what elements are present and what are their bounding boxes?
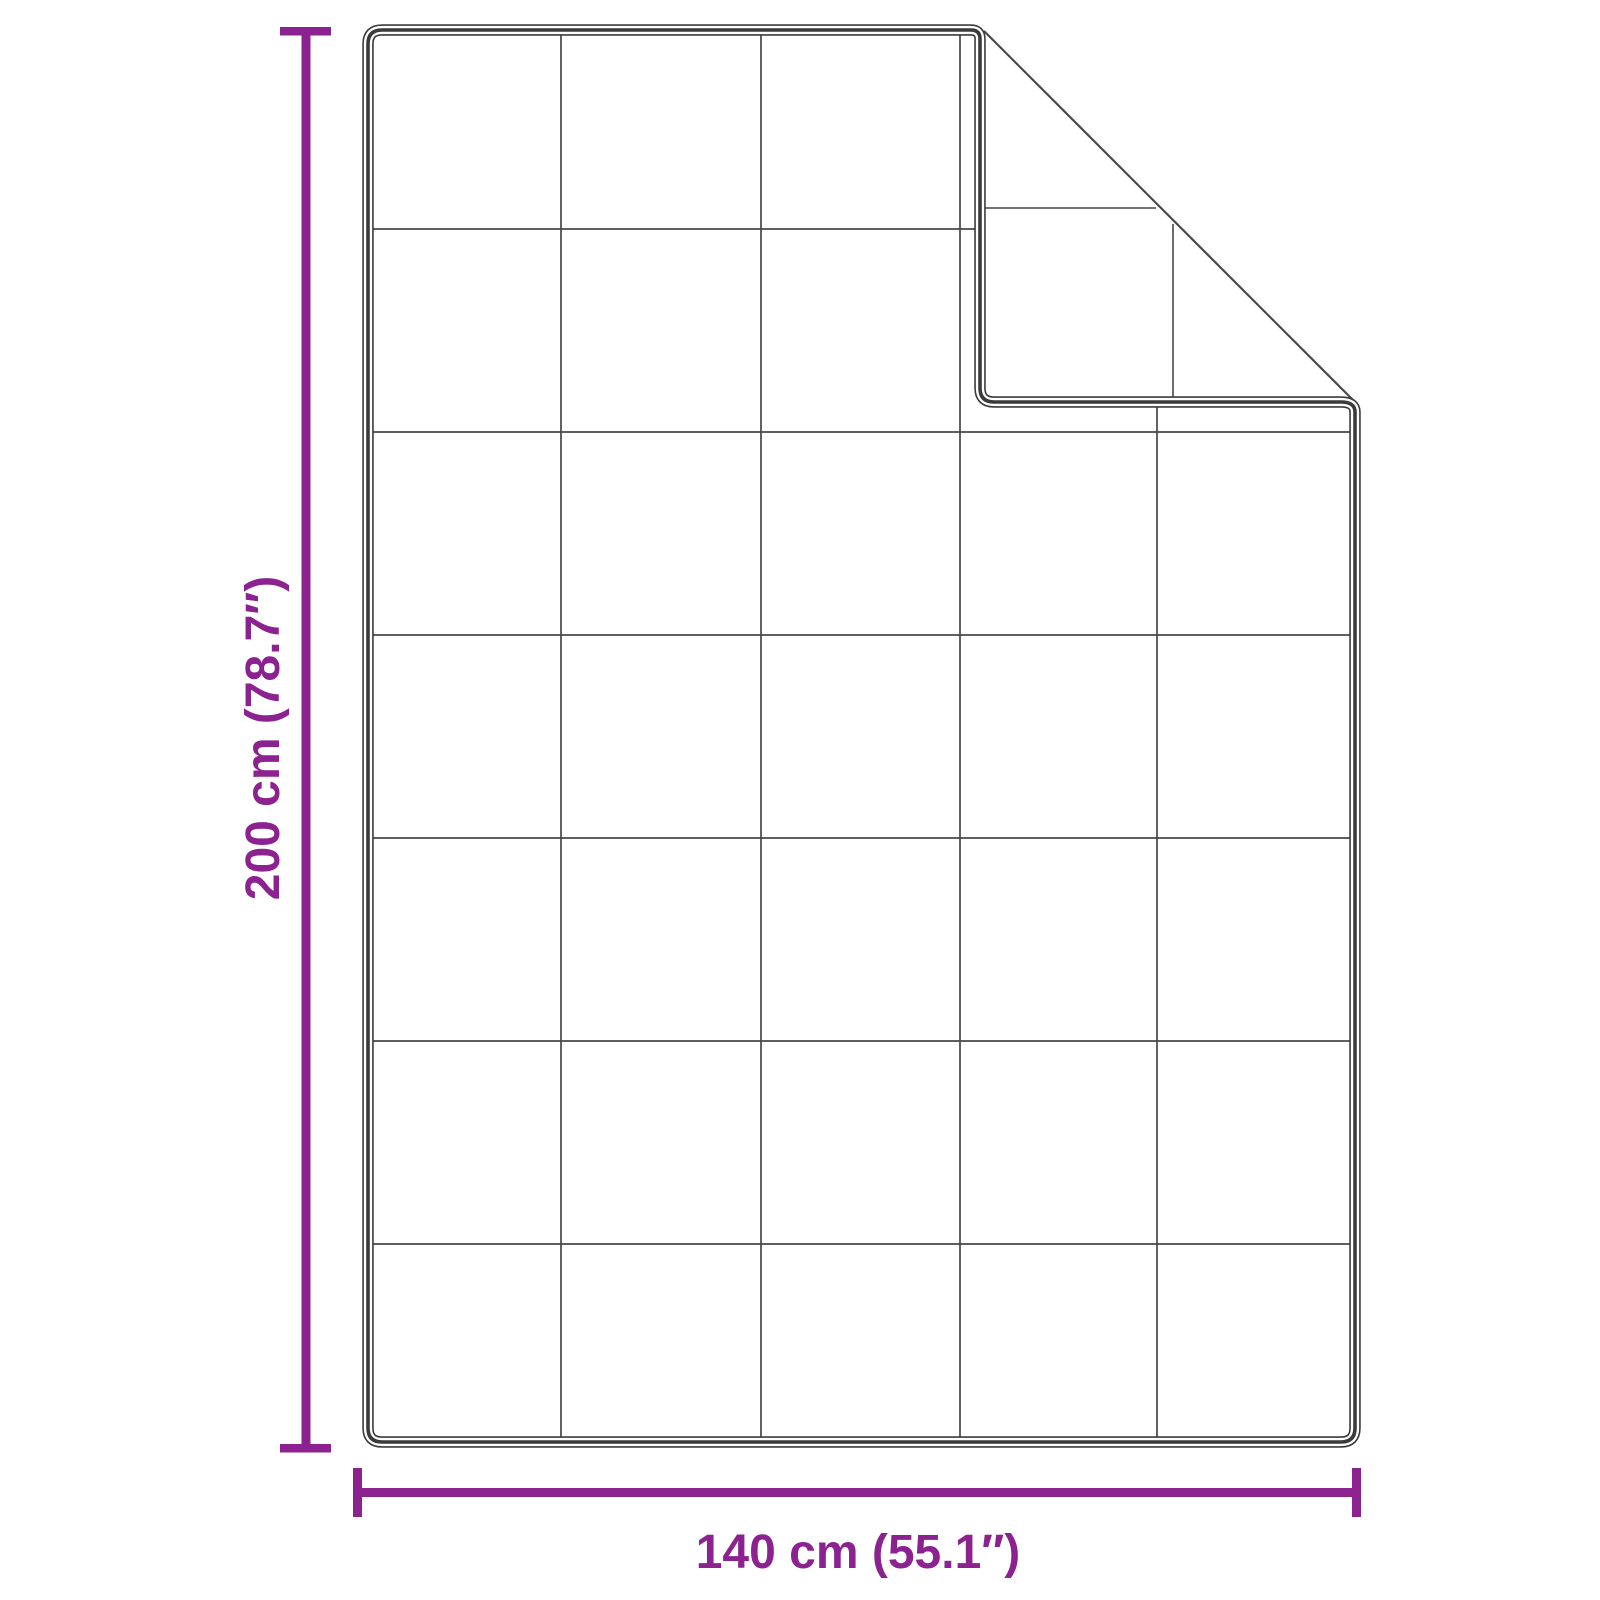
width-dimension-right-cap — [1352, 1468, 1361, 1517]
height-dimension: 200 cm (78.7″) — [237, 27, 331, 1453]
height-dimension-bottom-cap — [280, 1444, 331, 1453]
height-dimension-line — [302, 30, 311, 1448]
blanket-outline-gap — [368, 30, 1355, 1442]
diagram-canvas: 200 cm (78.7″) 140 cm (55.1″) — [0, 0, 1600, 1600]
fold-flap-stitch-lines — [981, 208, 1173, 401]
blanket-outline-inner — [368, 30, 1355, 1442]
width-dimension-line — [357, 1488, 1357, 1497]
height-dimension-label: 200 cm (78.7″) — [237, 576, 290, 901]
blanket-outline — [368, 30, 1355, 1442]
blanket-outline-outer — [368, 30, 1355, 1442]
width-dimension: 140 cm (55.1″) — [353, 1468, 1361, 1579]
fold-diagonal-line — [984, 31, 1356, 403]
width-dimension-label: 140 cm (55.1″) — [696, 1526, 1021, 1579]
quilt-grid — [368, 30, 1355, 1442]
product-dimension-diagram: 200 cm (78.7″) 140 cm (55.1″) — [0, 0, 1600, 1600]
